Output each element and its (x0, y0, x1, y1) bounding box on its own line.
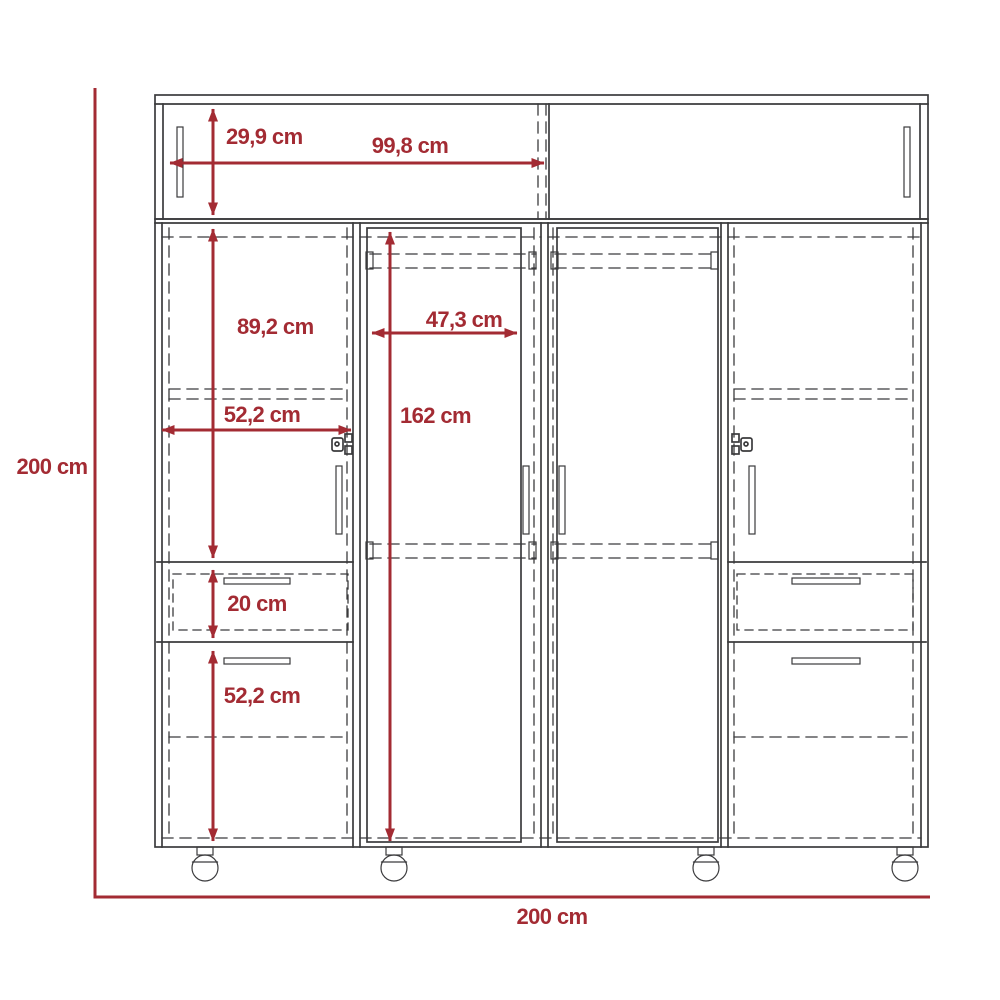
rod-bracket-icon (711, 542, 718, 559)
bottom-drawer-handle-icon (224, 658, 290, 664)
door-handle-icon (559, 466, 565, 534)
dim-label-overall-width: 200 cm (516, 904, 587, 929)
dim-label-door-height: 162 cm (400, 403, 471, 428)
hutch-outline (155, 95, 928, 219)
dim-label-upper-door-height: 89,2 cm (237, 314, 314, 339)
dim-label-hutch-door-width: 99,8 cm (372, 133, 449, 158)
overall-dimension-line (95, 88, 930, 897)
top-hutch (155, 95, 928, 219)
bottom-drawer-handle-icon (792, 658, 860, 664)
dim-label-overall-height: 200 cm (16, 454, 87, 479)
hinge-detail-icon (332, 434, 352, 454)
dim-label-top-drawer-height: 20 cm (227, 591, 286, 616)
rod-bracket-icon (711, 252, 718, 269)
door-handle-icon (523, 466, 529, 534)
dim-label-bottom-drawer-height: 52,2 cm (224, 683, 301, 708)
caster-foot-icon (892, 847, 918, 881)
middle-right-door-section (548, 228, 721, 842)
top-drawer-handle-icon (224, 578, 290, 584)
caster-foot-icon (381, 847, 407, 881)
door-panel (557, 228, 718, 842)
dim-label-inner-door-width: 47,3 cm (426, 307, 503, 332)
caster-foot-icon (192, 847, 218, 881)
diagram-canvas: 200 cm 200 cm 29,9 cm 99,8 cm 89,2 cm 47… (0, 0, 1000, 1000)
left-door-handle-icon (336, 466, 342, 534)
hutch-right-door-handle-icon (904, 127, 910, 197)
wardrobe-outline-drawing (155, 95, 928, 881)
caster-foot-icon (693, 847, 719, 881)
hinge-detail-icon (732, 434, 752, 454)
wardrobe-dimension-diagram: 200 cm 200 cm 29,9 cm 99,8 cm 89,2 cm 47… (0, 0, 1000, 1000)
dim-label-hutch-height: 29,9 cm (226, 124, 303, 149)
dimension-annotations: 200 cm 200 cm 29,9 cm 99,8 cm 89,2 cm 47… (16, 88, 930, 929)
dim-label-left-section-width: 52,2 cm (224, 402, 301, 427)
dimension-labels: 200 cm 200 cm 29,9 cm 99,8 cm 89,2 cm 47… (16, 124, 587, 929)
right-section (728, 228, 926, 838)
right-door-handle-icon (749, 466, 755, 534)
top-drawer-handle-icon (792, 578, 860, 584)
top-drawer-hidden-box (737, 574, 913, 630)
